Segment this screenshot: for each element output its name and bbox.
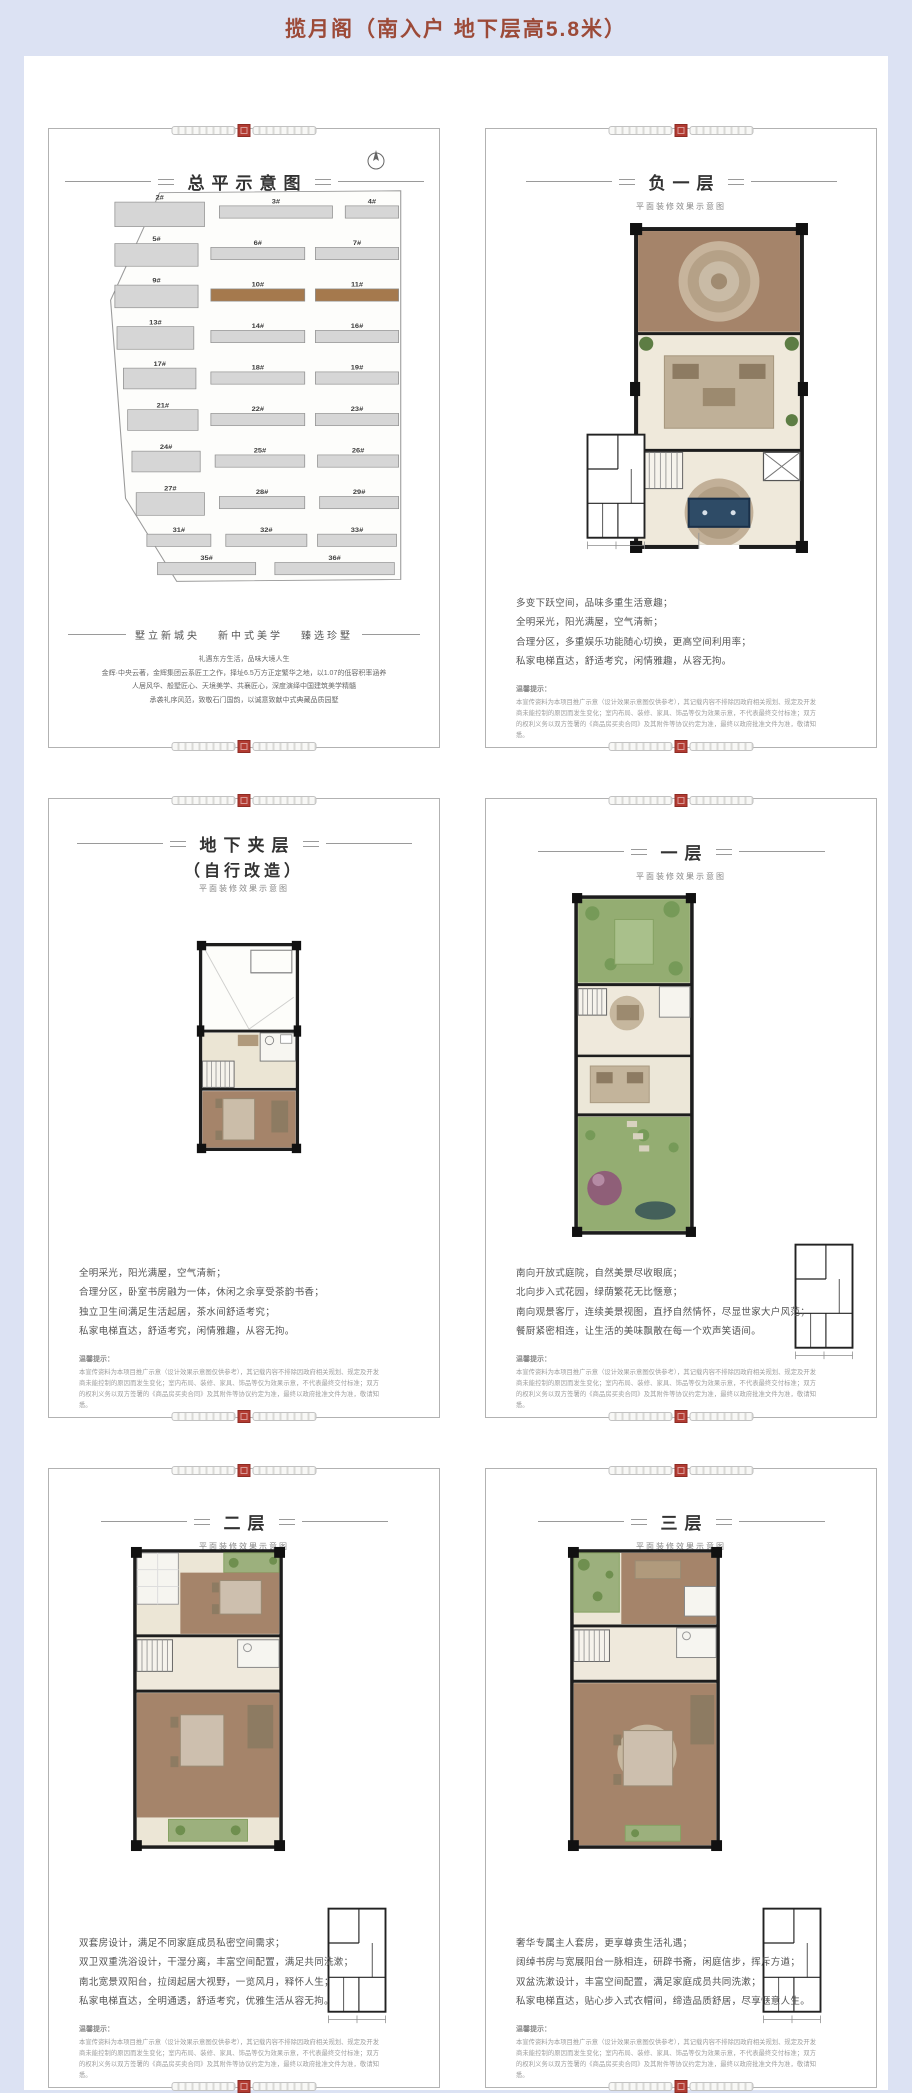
plan-shape xyxy=(627,1121,637,1127)
flourish-line xyxy=(362,634,420,635)
flourish-ornament xyxy=(728,179,744,185)
plan-shape xyxy=(585,906,599,920)
border-ornament xyxy=(609,1464,754,1477)
site-building-label: 6# xyxy=(254,240,262,247)
plan-shape xyxy=(711,1840,722,1851)
feature-lines: 南向开放式庭院，自然美景尽收眼底；北向步入式花园，绿荫繁花无比惬意；南向观景客厅… xyxy=(516,1264,852,1342)
disclaimer-text: 本宣传资料为本项目推广示意（设计效果示意图仅供参考），其记载内容不排除因政府相关… xyxy=(516,2037,816,2081)
plan-shape xyxy=(593,1591,603,1601)
ornament-bar xyxy=(609,1412,673,1421)
text-line: 全明采光，阳光满屋，空气清新； xyxy=(79,1264,415,1283)
text-line: 奢华专属主人套房，更享尊贵生活礼遇； xyxy=(516,1934,852,1953)
plan-shape xyxy=(703,388,735,406)
compass-icon xyxy=(365,147,387,173)
plan-shape xyxy=(271,1101,288,1133)
site-building-label: 3# xyxy=(272,199,280,206)
text-line: 北向步入式花园，绿荫繁花无比惬意； xyxy=(516,1283,852,1302)
site-building xyxy=(320,496,399,508)
site-building xyxy=(219,206,332,218)
plan-shape xyxy=(238,1640,279,1668)
floor-3-floor-plan xyxy=(566,1545,724,1853)
plan-shape xyxy=(663,901,679,917)
site-building xyxy=(123,368,196,389)
plan-shape xyxy=(633,1133,643,1139)
plan-shape xyxy=(568,1840,579,1851)
site-building xyxy=(115,202,205,227)
flourish-line xyxy=(538,851,624,852)
site-building-label: 16# xyxy=(351,323,364,330)
plan-shape xyxy=(274,1840,285,1851)
plan-shape xyxy=(606,1571,614,1579)
border-ornament xyxy=(609,124,754,137)
site-building xyxy=(147,534,211,546)
plan-shape xyxy=(572,893,582,903)
floor-2-floor-plan xyxy=(129,1545,287,1853)
panel-title-row: 地下夹层 xyxy=(49,831,439,856)
plan-shape xyxy=(568,1547,579,1558)
plan-shape xyxy=(711,273,727,289)
site-building-label: 5# xyxy=(152,237,160,244)
disclaimer: 温馨提示： 本宣传资料为本项目推广示意（设计效果示意图仅供参考），其记载内容不排… xyxy=(516,2024,816,2081)
plan-shape xyxy=(627,1072,643,1083)
plan-shape xyxy=(677,1628,717,1658)
plan-shape xyxy=(175,1825,185,1835)
seal-stamp-icon xyxy=(675,124,688,137)
border-ornament xyxy=(609,794,754,807)
slogan-word: 新中式美学 xyxy=(218,627,283,642)
text-line: 人居风华、般墅匠心、天境美学、共襄匠心，深度演绎中国建筑美学精髓 xyxy=(69,680,419,694)
plan-shape xyxy=(197,1144,206,1153)
plan-shape xyxy=(220,1581,261,1615)
site-building-label: 4# xyxy=(368,199,376,206)
plan-shape xyxy=(578,1559,590,1571)
panel-title-row: 负一层 xyxy=(486,169,876,194)
plan-shape xyxy=(180,1715,223,1766)
plan-shape xyxy=(739,364,765,379)
ornament-bar xyxy=(690,126,754,135)
text-line: 南北宽景双阳台，拉阔起居大视野，一览风月，释怀人生； xyxy=(79,1973,415,1992)
slogan-row: 墅立新城央 新中式美学 臻选珍墅 xyxy=(49,627,439,642)
plan-shape xyxy=(630,223,642,235)
plan-shape xyxy=(669,1142,679,1152)
basement-1-floor-plan xyxy=(628,221,810,555)
flourish-ornament xyxy=(631,849,647,855)
text-line: 阔绰书房与宽展阳台一脉相连，研辟书斋，闲庭信步，挥斥方遒； xyxy=(516,1953,852,1972)
plan-shape xyxy=(630,382,640,396)
text-line: 礼遇东方生活，品味大境人生 xyxy=(69,653,419,667)
key-plan-schematic xyxy=(578,427,654,553)
plan-shape xyxy=(596,1072,612,1083)
plan-shape xyxy=(786,414,798,426)
text-line: 双盆洗漱设计，丰富空间配置，满足家庭成员共同洗漱； xyxy=(516,1973,852,1992)
plan-shape xyxy=(229,1558,239,1568)
flourish-ornament xyxy=(158,179,174,185)
page-header: 揽月阁（南入户 地下层高5.8米） xyxy=(0,0,912,56)
panel-text: 南向开放式庭院，自然美景尽收眼底；北向步入式花园，绿荫繁花无比惬意；南向观景客厅… xyxy=(516,1264,852,1411)
text-line: 餐厨紧密相连，让生活的美味飘散在每一个欢声笑语间。 xyxy=(516,1322,852,1341)
ornament-bar xyxy=(172,742,236,751)
flourish-ornament xyxy=(170,841,186,847)
panel-title: 三层 xyxy=(654,1509,709,1534)
seal-stamp-icon xyxy=(675,740,688,753)
disclaimer: 温馨提示： 本宣传资料为本项目推广示意（设计效果示意图仅供参考），其记载内容不排… xyxy=(79,1354,379,1411)
plan-shape xyxy=(631,1829,639,1837)
seal-stamp-icon xyxy=(675,1464,688,1477)
disclaimer-title: 温馨提示： xyxy=(79,2024,379,2034)
site-building-label: 27# xyxy=(164,486,177,493)
panel-subtitle: 平面装修效果示意图 xyxy=(49,883,439,894)
flourish-line xyxy=(526,181,612,182)
ornament-bar xyxy=(609,796,673,805)
disclaimer: 温馨提示： 本宣传资料为本项目推广示意（设计效果示意图仅供参考），其记载内容不排… xyxy=(79,2024,379,2081)
site-building xyxy=(115,244,198,267)
site-building-label: 36# xyxy=(328,555,341,562)
plan-shape xyxy=(197,941,206,950)
flourish-line xyxy=(101,1521,187,1522)
ornament-bar xyxy=(253,742,317,751)
ornament-bar xyxy=(690,742,754,751)
text-line: 双套房设计，满足不同家庭成员私密空间需求； xyxy=(79,1934,415,1953)
site-building xyxy=(345,206,398,218)
panel-title-row: 二层 xyxy=(49,1509,439,1534)
site-building-label: 31# xyxy=(173,527,186,534)
site-building-label: 25# xyxy=(254,448,267,455)
site-building xyxy=(315,247,398,259)
panel-title: 一层 xyxy=(654,839,709,864)
disclaimer-title: 温馨提示： xyxy=(516,2024,816,2034)
site-building-label: 32# xyxy=(260,527,273,534)
ornament-bar xyxy=(609,742,673,751)
site-building-label: 18# xyxy=(252,365,265,372)
site-building-label: 7# xyxy=(353,240,361,247)
site-building xyxy=(211,372,305,384)
panel-site-plan: 总平示意图 2#3#4#5#6#7#9#10#11#13#14#16#17#18… xyxy=(48,128,440,748)
border-ornament xyxy=(609,740,754,753)
plan-shape xyxy=(731,510,736,515)
disclaimer-title: 温馨提示： xyxy=(516,1354,816,1364)
plan-shape xyxy=(659,987,689,1018)
plan-shape xyxy=(248,1705,274,1748)
site-building-label: 23# xyxy=(351,406,364,413)
text-line: 多变下跃空间，品味多重生活意趣； xyxy=(516,594,852,613)
site-building-label: 35# xyxy=(200,555,213,562)
plan-shape xyxy=(613,1774,621,1785)
plan-shape xyxy=(215,1131,222,1140)
plan-shape xyxy=(672,364,698,379)
ornament-bar xyxy=(172,796,236,805)
border-ornament xyxy=(172,1464,317,1477)
panel-floor-2: 二层 平面装修效果示意图 双套房设计，满足不同家庭成员私密空间需求；双卫双重洗浴… xyxy=(48,1468,440,2088)
flourish-line xyxy=(538,1521,624,1522)
plan-shape xyxy=(281,1035,292,1043)
plan-shape xyxy=(294,1025,301,1036)
plan-shape xyxy=(635,1201,676,1219)
site-building-label: 26# xyxy=(352,448,365,455)
seal-stamp-icon xyxy=(675,2080,688,2093)
plan-shape xyxy=(669,961,683,975)
seal-stamp-icon xyxy=(675,794,688,807)
ornament-bar xyxy=(253,126,317,135)
disclaimer: 温馨提示： 本宣传资料为本项目推广示意（设计效果示意图仅供参考），其记载内容不排… xyxy=(516,684,816,741)
disclaimer: 温馨提示： 本宣传资料为本项目推广示意（设计效果示意图仅供参考），其记载内容不排… xyxy=(516,1354,816,1411)
panel-title: 负一层 xyxy=(642,169,721,194)
site-building xyxy=(318,534,397,546)
site-building-label: 13# xyxy=(149,320,162,327)
site-building xyxy=(315,372,398,384)
plan-shape xyxy=(690,1695,714,1744)
plan-shape xyxy=(592,1174,604,1186)
seal-stamp-icon xyxy=(675,1410,688,1423)
site-building-label: 21# xyxy=(157,403,170,410)
plan-shape xyxy=(617,1005,639,1020)
plan-shape xyxy=(238,1035,258,1046)
site-building xyxy=(315,289,398,301)
panel-text: 全明采光，阳光满屋，空气清新；合理分区，卧室书房融为一体，休闲之余享受茶韵书香；… xyxy=(79,1264,415,1411)
disclaimer-text: 本宣传资料为本项目推广示意（设计效果示意图仅供参考），其记载内容不排除因政府相关… xyxy=(79,1367,379,1411)
plan-shape xyxy=(292,941,301,950)
plan-shape xyxy=(613,1735,621,1746)
seal-stamp-icon xyxy=(238,794,251,807)
plan-shape xyxy=(699,545,739,551)
site-building xyxy=(211,330,305,342)
border-ornament xyxy=(172,2080,317,2093)
text-line: 南向观景客厅，连续美景视图，直抒自然情怀，尽显世家大户风范； xyxy=(516,1303,852,1322)
text-line: 南向开放式庭院，自然美景尽收眼底； xyxy=(516,1264,852,1283)
feature-lines: 多变下跃空间，品味多重生活意趣；全明采光，阳光满屋，空气清新；合理分区，多重娱乐… xyxy=(516,594,852,672)
site-building xyxy=(128,410,198,431)
site-building xyxy=(318,455,399,467)
slogan-word: 墅立新城央 xyxy=(135,627,200,642)
flourish-line xyxy=(68,634,126,635)
site-building xyxy=(158,562,256,574)
site-building-label: 14# xyxy=(252,323,265,330)
flourish-ornament xyxy=(716,1519,732,1525)
plan-shape xyxy=(689,499,750,527)
site-building xyxy=(275,562,394,574)
ornament-bar xyxy=(172,1466,236,1475)
text-line: 独立卫生间满足生活起居，茶水间舒适考究； xyxy=(79,1303,415,1322)
feature-lines: 全明采光，阳光满屋，空气清新；合理分区，卧室书房融为一体，休闲之余享受茶韵书香；… xyxy=(79,1264,415,1342)
panel-floor-3: 三层 平面装修效果示意图 奢华专属主人套房，更享尊贵生活礼遇；阔绰书房与宽展阳台… xyxy=(485,1468,877,2088)
site-building-label: 19# xyxy=(351,365,364,372)
panel-text: 双套房设计，满足不同家庭成员私密空间需求；双卫双重洗浴设计，干湿分离，丰富空间配… xyxy=(79,1934,415,2081)
panel-title: 地下夹层 xyxy=(193,831,296,856)
page-title: 揽月阁（南入户 地下层高5.8米） xyxy=(0,0,912,43)
plan-shape xyxy=(590,1066,649,1103)
flourish-line xyxy=(77,843,163,844)
plan-shape xyxy=(131,1547,142,1558)
text-line: 承袭礼序风范，致敬石门国韵，以诚意致献中式典藏品质园墅 xyxy=(69,694,419,708)
flourish-ornament xyxy=(619,179,635,185)
site-building xyxy=(136,493,204,516)
site-building xyxy=(315,413,398,425)
plan-shape xyxy=(588,435,645,538)
panel-title-row: 三层 xyxy=(486,1509,876,1534)
ornament-bar xyxy=(253,1466,317,1475)
site-building-label: 11# xyxy=(351,282,363,289)
seal-stamp-icon xyxy=(238,1410,251,1423)
floor-1-floor-plan xyxy=(570,891,698,1239)
plan-shape xyxy=(292,1144,301,1153)
plan-shape xyxy=(572,1227,582,1237)
flourish-ornament xyxy=(631,1519,647,1525)
plan-shape xyxy=(785,337,799,351)
site-building-label: 22# xyxy=(252,406,265,413)
ornament-bar xyxy=(609,126,673,135)
plan-shape xyxy=(639,337,653,351)
mezzanine-floor-plan xyxy=(195,939,303,1155)
slogan-word: 臻选珍墅 xyxy=(301,627,353,642)
ornament-bar xyxy=(690,1466,754,1475)
flourish-ornament xyxy=(279,1519,295,1525)
site-building-label: 28# xyxy=(256,489,269,496)
panel-title-row: 一层 xyxy=(486,839,876,864)
plan-shape xyxy=(635,1561,680,1579)
text-line: 金辉·中央云著，金辉集团云系匠工之作，择址6.5万方正定繁华之地，以1.07的低… xyxy=(69,667,419,681)
border-ornament xyxy=(172,1410,317,1423)
text-line: 合理分区，多重娱乐功能随心切换，更高空间利用率； xyxy=(516,633,852,652)
panel-floor-1: 一层 平面装修效果示意图 南向开放式庭院，自然美景尽收眼底；北向步入式花园，绿荫… xyxy=(485,798,877,1418)
plan-shape xyxy=(212,1604,219,1614)
site-description: 礼遇东方生活，品味大境人生金辉·中央云著，金辉集团云系匠工之作，择址6.5万方正… xyxy=(69,653,419,708)
site-building-label: 10# xyxy=(252,282,265,289)
plan-shape xyxy=(686,1227,696,1237)
site-building-label: 2# xyxy=(156,195,164,202)
plan-shape xyxy=(623,1731,672,1786)
site-building-label: 33# xyxy=(351,527,364,534)
disclaimer-title: 温馨提示： xyxy=(79,1354,379,1364)
plan-shape xyxy=(796,541,808,553)
ornament-bar xyxy=(253,796,317,805)
plan-shape xyxy=(231,1825,241,1835)
site-building xyxy=(117,327,194,350)
site-building xyxy=(211,247,305,259)
plan-shape xyxy=(269,1557,277,1565)
ornament-bar xyxy=(172,126,236,135)
plan-shape xyxy=(587,1171,622,1206)
site-building-label: 9# xyxy=(152,278,160,285)
text-line: 私家电梯直达，舒适考究，闲情雅趣，从容无拘。 xyxy=(79,1322,415,1341)
disclaimer-text: 本宣传资料为本项目推广示意（设计效果示意图仅供参考），其记载内容不排除因政府相关… xyxy=(516,697,816,741)
text-line: 双卫双重洗浴设计，干湿分离，丰富空间配置，满足共同洗漱； xyxy=(79,1953,415,1972)
plan-shape xyxy=(274,1547,285,1558)
site-building xyxy=(115,285,198,308)
plan-shape xyxy=(170,1717,178,1728)
flourish-line xyxy=(739,851,825,852)
text-line: 全明采光，阳光满屋，空气清新； xyxy=(516,613,852,632)
plan-shape xyxy=(711,1547,722,1558)
site-building xyxy=(132,451,200,472)
plan-shape xyxy=(702,510,707,515)
site-building xyxy=(211,289,305,301)
plan-shape xyxy=(686,893,696,903)
flourish-ornament xyxy=(303,841,319,847)
plan-shape xyxy=(131,1840,142,1851)
panel-title-line2: （自行改造） xyxy=(49,857,439,881)
plan-shape xyxy=(798,382,808,396)
panel-basement-1: 负一层 平面装修效果示意图 多变下跃空间，品味多重生活意趣；全明采光，阳光满屋，… xyxy=(485,128,877,748)
seal-stamp-icon xyxy=(238,2080,251,2093)
plan-shape xyxy=(585,1130,595,1140)
plan-shape xyxy=(215,1099,222,1108)
text-line: 私家电梯直达，舒适考究，闲情雅趣，从容无拘。 xyxy=(516,652,852,671)
text-line: 合理分区，卧室书房融为一体，休闲之余享受茶韵书香； xyxy=(79,1283,415,1302)
site-building-label: 24# xyxy=(160,444,173,451)
disclaimer-text: 本宣传资料为本项目推广示意（设计效果示意图仅供参考），其记载内容不排除因政府相关… xyxy=(516,1367,816,1411)
border-ornament xyxy=(172,124,317,137)
border-ornament xyxy=(609,1410,754,1423)
ornament-bar xyxy=(172,1412,236,1421)
site-building xyxy=(226,534,307,546)
plan-shape xyxy=(639,1145,649,1151)
feature-lines: 双套房设计，满足不同家庭成员私密空间需求；双卫双重洗浴设计，干湿分离，丰富空间配… xyxy=(79,1934,415,2012)
site-building xyxy=(215,455,305,467)
text-line: 私家电梯直达，全明通透，舒适考究，优雅生活从容无拘。 xyxy=(79,1992,415,2011)
border-ornament xyxy=(172,740,317,753)
plan-shape xyxy=(615,919,654,964)
panel-text: 奢华专属主人套房，更享尊贵生活礼遇；阔绰书房与宽展阳台一脉相连，研辟书斋，闲庭信… xyxy=(516,1934,852,2081)
flourish-line xyxy=(326,843,412,844)
ornament-bar xyxy=(609,1466,673,1475)
panel-subtitle: 平面装修效果示意图 xyxy=(486,871,876,882)
panel-mezzanine: 地下夹层 （自行改造） 平面装修效果示意图 全明采光，阳光满屋，空气清新；合理分… xyxy=(48,798,440,1418)
flourish-line xyxy=(65,181,151,182)
plan-shape xyxy=(796,223,808,235)
site-building-label: 17# xyxy=(153,361,166,368)
plan-shape xyxy=(685,1586,717,1616)
flourish-ornament xyxy=(315,179,331,185)
site-building xyxy=(211,413,305,425)
seal-stamp-icon xyxy=(238,124,251,137)
ornament-bar xyxy=(690,1412,754,1421)
plan-shape xyxy=(170,1756,178,1767)
panel-text: 多变下跃空间，品味多重生活意趣；全明采光，阳光满屋，空气清新；合理分区，多重娱乐… xyxy=(516,594,852,741)
flourish-line xyxy=(302,1521,388,1522)
ornament-bar xyxy=(690,796,754,805)
flourish-ornament xyxy=(194,1519,210,1525)
site-plan-map: 2#3#4#5#6#7#9#10#11#13#14#16#17#18#19#21… xyxy=(85,187,405,587)
border-ornament xyxy=(609,2080,754,2093)
flourish-line xyxy=(739,1521,825,1522)
seal-stamp-icon xyxy=(238,1464,251,1477)
disclaimer-text: 本宣传资料为本项目推广示意（设计效果示意图仅供参考），其记载内容不排除因政府相关… xyxy=(79,2037,379,2081)
flourish-line xyxy=(338,181,424,182)
flourish-line xyxy=(751,181,837,182)
panel-title: 二层 xyxy=(217,1509,272,1534)
disclaimer-title: 温馨提示： xyxy=(516,684,816,694)
site-building xyxy=(219,496,304,508)
flourish-ornament xyxy=(716,849,732,855)
site-building-label: 29# xyxy=(353,489,366,496)
text-line: 私家电梯直达，贴心步入式衣帽间，缔造品质舒居，尽享惬意人生。 xyxy=(516,1992,852,2011)
plan-shape xyxy=(223,1099,255,1140)
plan-shape xyxy=(212,1583,219,1593)
ornament-bar xyxy=(253,1412,317,1421)
feature-lines: 奢华专属主人套房，更享尊贵生活礼遇；阔绰书房与宽展阳台一脉相连，研辟书斋，闲庭信… xyxy=(516,1934,852,2012)
seal-stamp-icon xyxy=(238,740,251,753)
site-building xyxy=(315,330,398,342)
panel-subtitle: 平面装修效果示意图 xyxy=(486,201,876,212)
border-ornament xyxy=(172,794,317,807)
plan-shape xyxy=(197,1025,204,1036)
